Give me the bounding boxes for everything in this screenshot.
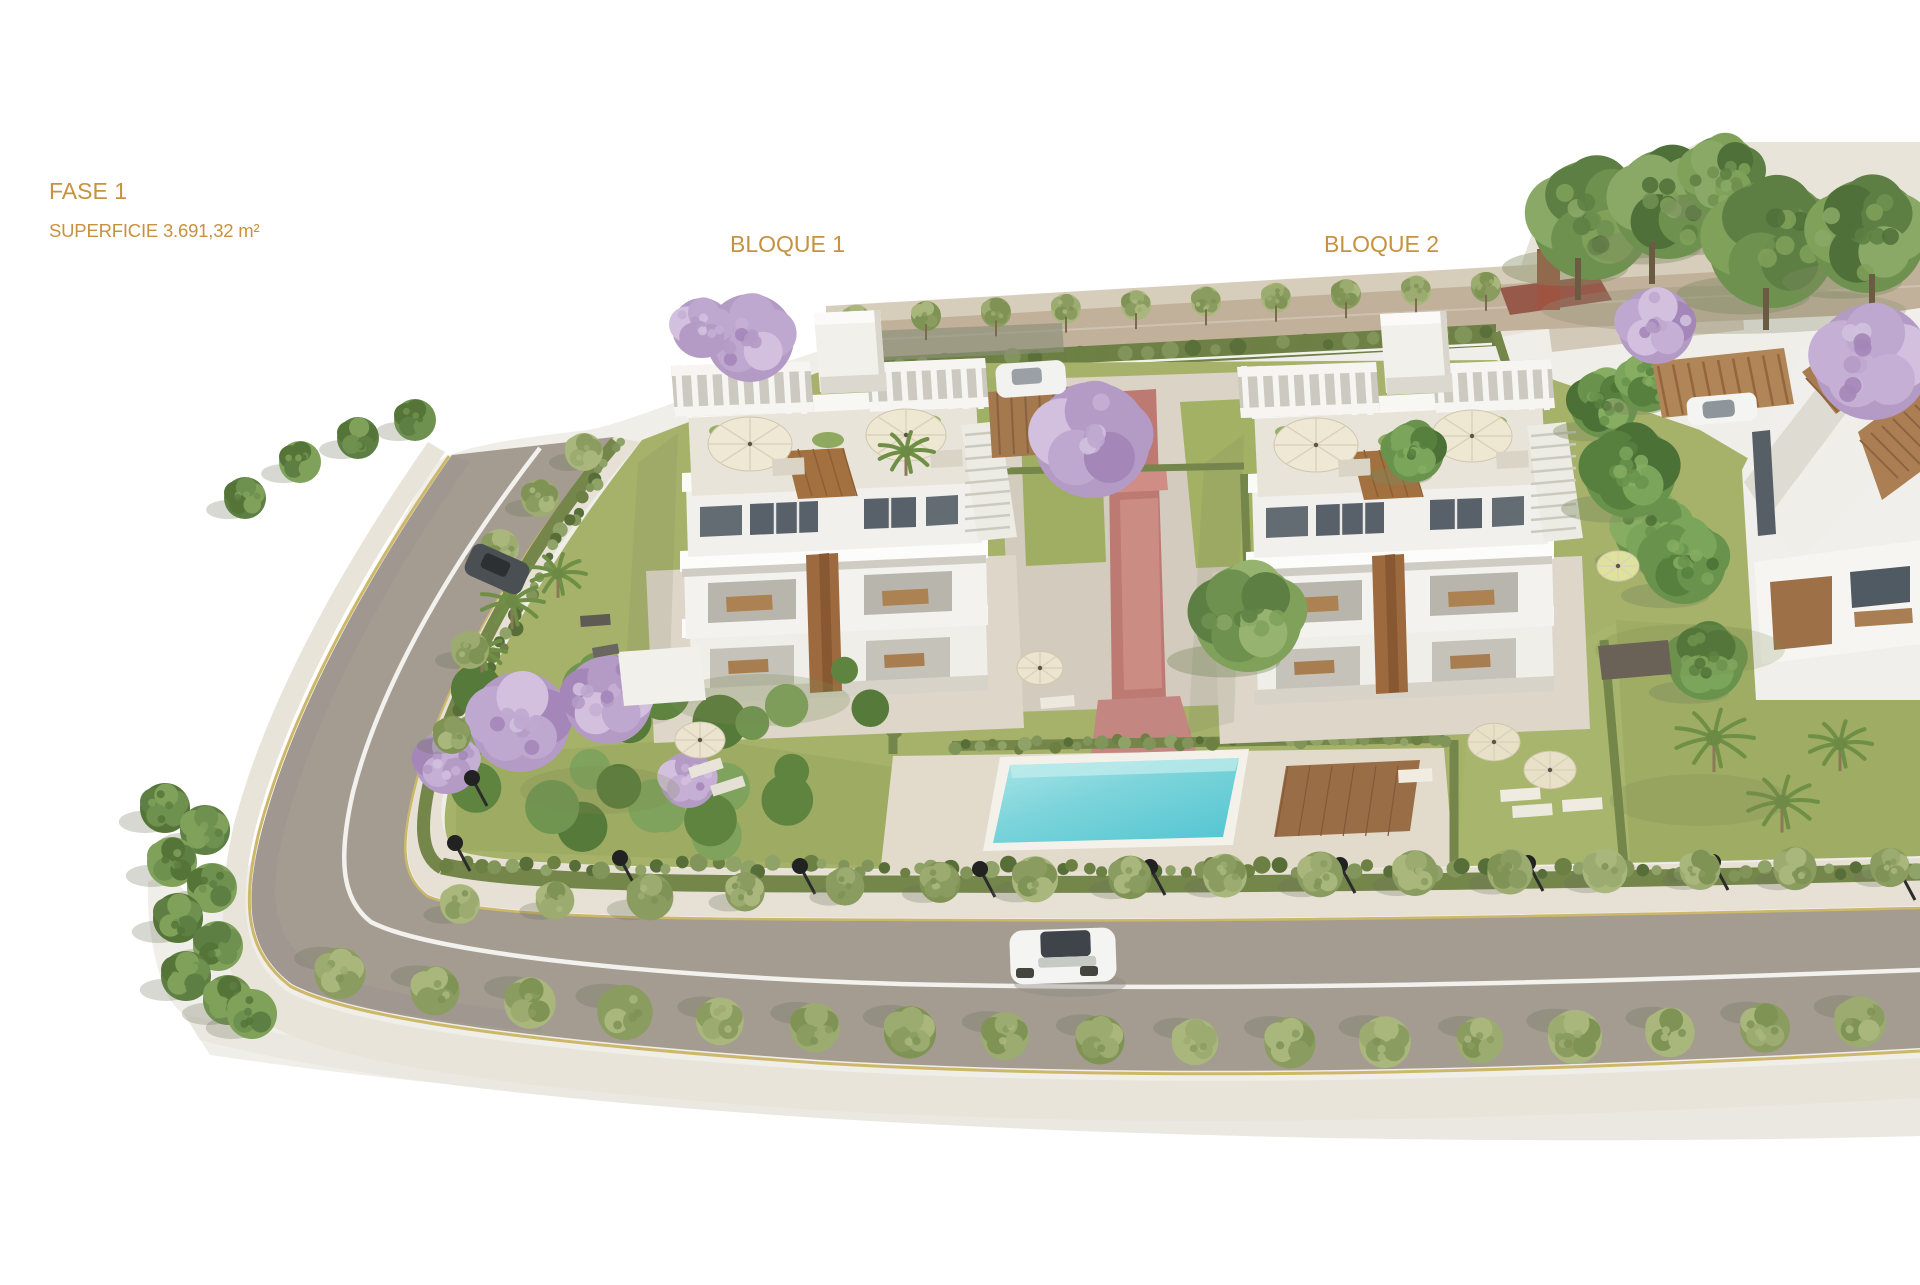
svg-text:SUPERFICIE 3.691,32 m²: SUPERFICIE 3.691,32 m² bbox=[49, 220, 260, 241]
svg-text:FASE 1: FASE 1 bbox=[49, 178, 127, 204]
svg-text:BLOQUE 2: BLOQUE 2 bbox=[1324, 231, 1439, 257]
svg-text:BLOQUE 1: BLOQUE 1 bbox=[730, 231, 845, 257]
